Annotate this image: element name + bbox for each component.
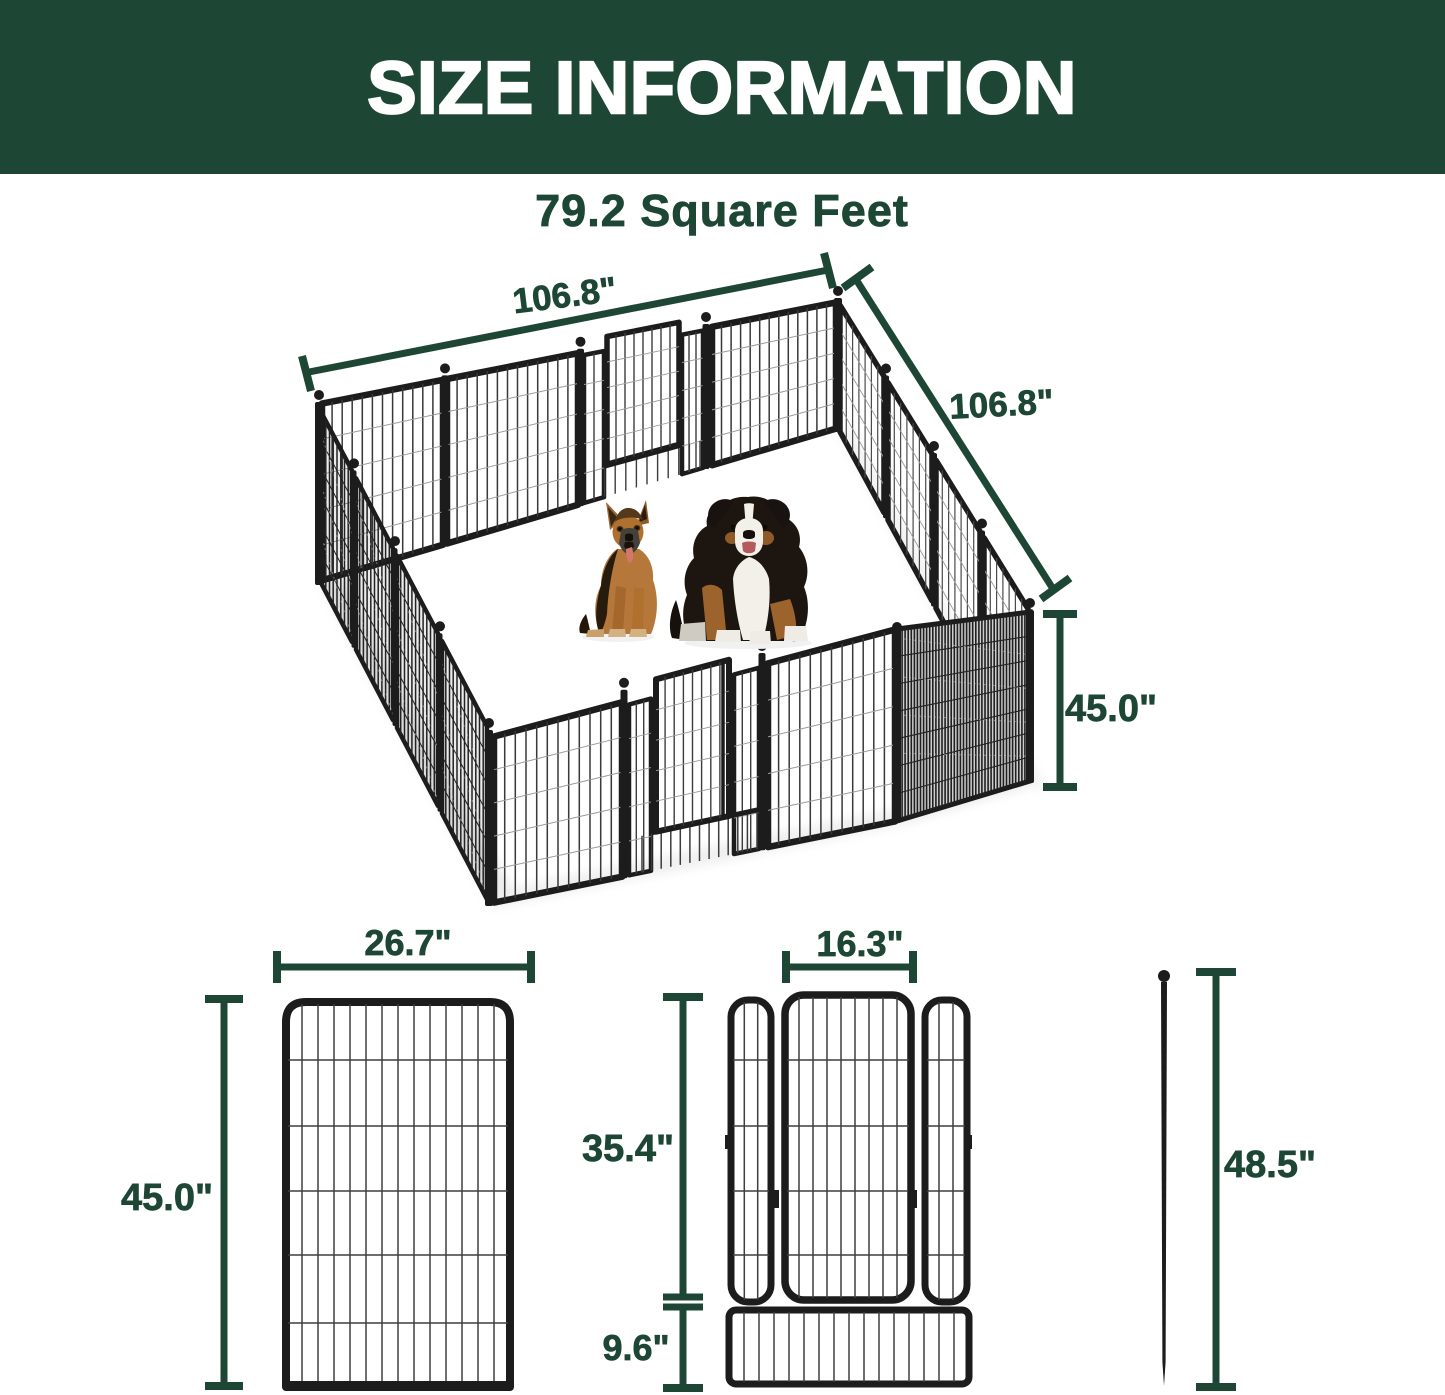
svg-text:35.4": 35.4" xyxy=(582,1128,674,1170)
svg-text:79.2 Square Feet: 79.2 Square Feet xyxy=(535,185,909,236)
svg-text:16.3": 16.3" xyxy=(816,923,903,964)
svg-text:9.6": 9.6" xyxy=(602,1327,669,1368)
svg-text:26.7": 26.7" xyxy=(364,922,451,963)
svg-text:48.5": 48.5" xyxy=(1224,1144,1316,1186)
svg-text:SIZE INFORMATION: SIZE INFORMATION xyxy=(367,46,1077,129)
svg-text:45.0": 45.0" xyxy=(121,1177,213,1219)
svg-text:106.8": 106.8" xyxy=(948,382,1054,426)
svg-text:45.0": 45.0" xyxy=(1065,688,1157,730)
